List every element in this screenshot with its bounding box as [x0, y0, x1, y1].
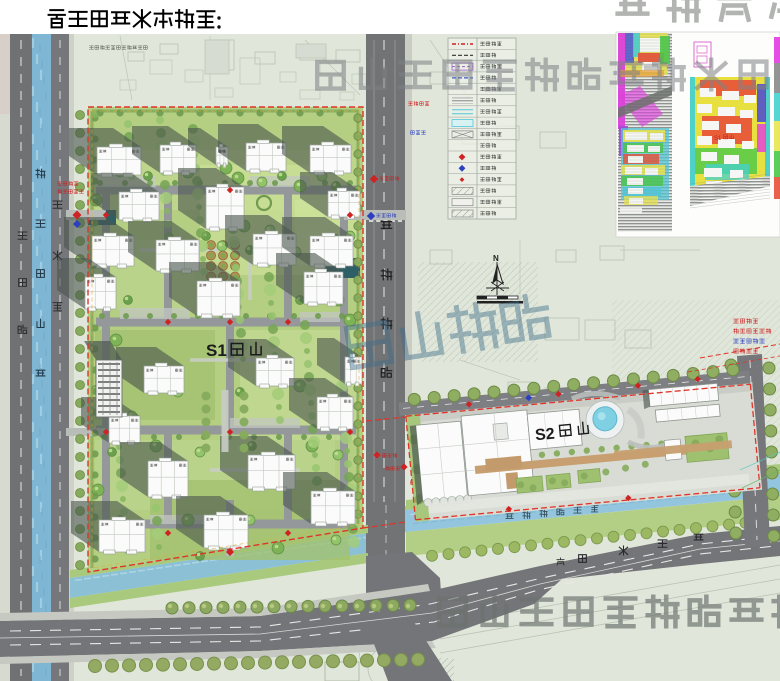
svg-text:N: N: [493, 254, 499, 263]
svg-text:S1: S1: [714, 136, 722, 142]
svg-text:S1: S1: [206, 341, 227, 360]
svg-text:S2: S2: [534, 426, 555, 445]
